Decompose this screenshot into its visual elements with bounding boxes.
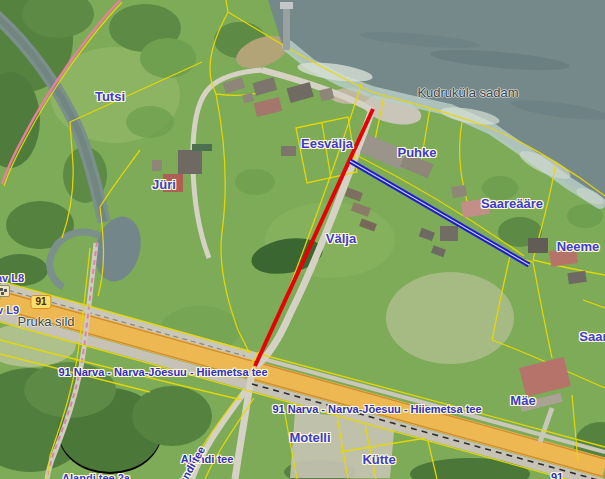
road-label-highway-east: 91 Narva - Narva-Jõesuu - Hiiemetsa tee (272, 403, 481, 415)
parcel-label-eesvalja: Eesvälja (301, 136, 353, 151)
parcel-label-kutte: Kütte (362, 452, 395, 467)
parcel-label-motelli: Motelli (289, 430, 330, 445)
parcel-label-saare: Saare (579, 329, 605, 344)
place-label-pruka-sild: Pruka sild (17, 314, 74, 329)
parcel-label-neeme: Neeme (557, 239, 600, 254)
parcel-label-mae: Mäe (510, 393, 535, 408)
parcel-label-av-l8: av L8 (0, 272, 24, 284)
road-label-highway-west: 91 Narva - Narva-Jõesuu - Hiiemetsa tee (58, 366, 267, 378)
parcel-label-saareaare: Saareääre (481, 196, 543, 211)
map-canvas[interactable]: Tutsi Eesvälja Puhke Jüri Saareääre Välj… (0, 0, 605, 479)
parcel-label-juri: Jüri (152, 177, 176, 192)
parcel-label-alandi-tee-2a: Alandi tee 2a (62, 472, 130, 479)
route-91-shield: 91 (30, 295, 51, 309)
parcel-label-valja: Välja (326, 231, 356, 246)
place-label-kudrukula-sadam: Kudruküla sadam (417, 85, 518, 100)
parcel-label-tutsi: Tutsi (95, 89, 125, 104)
parcel-label-puhke: Puhke (397, 145, 436, 160)
parcel-label-v-l9: v L9 (0, 304, 19, 316)
road-label-91-partial: 91 (551, 471, 563, 479)
road-sign-icon (0, 285, 10, 297)
